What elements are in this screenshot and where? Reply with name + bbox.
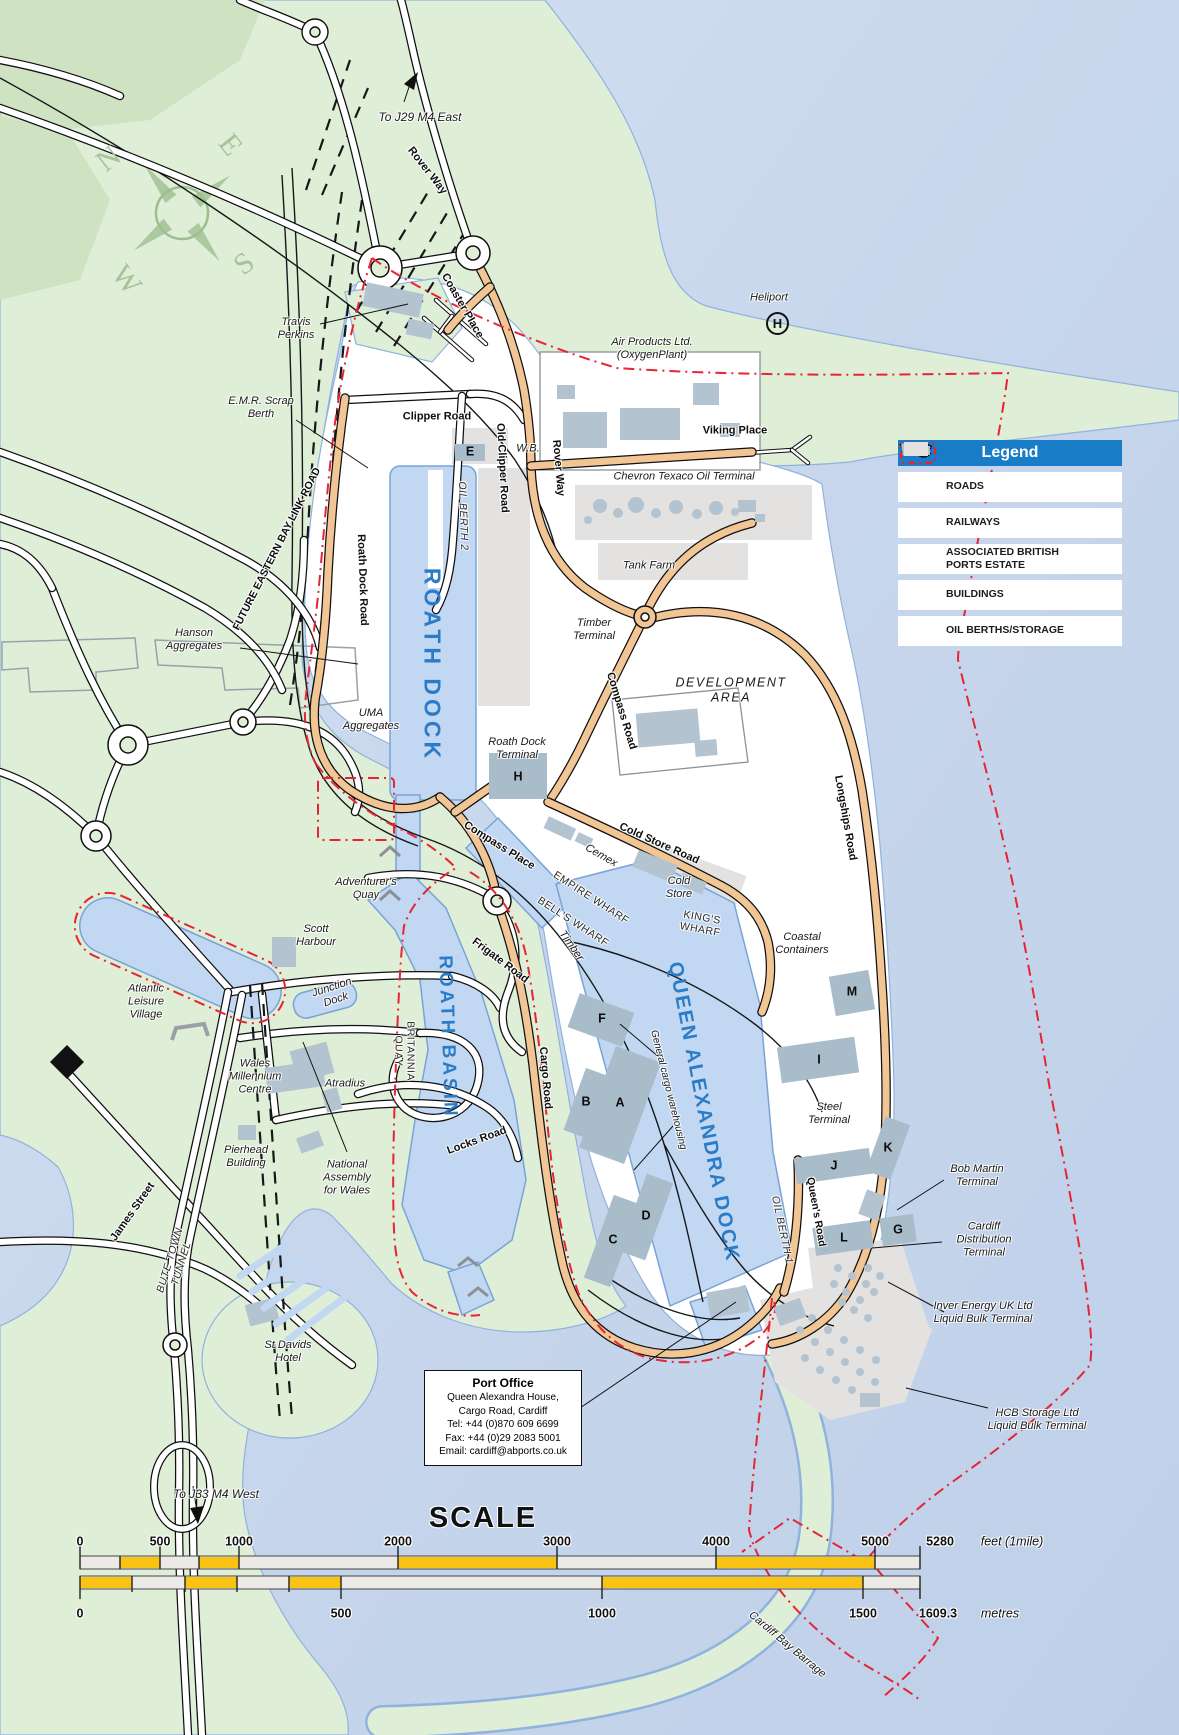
label-britannia-quay: BRITANNIA QUAY xyxy=(392,1021,417,1081)
marker-k: K xyxy=(883,1141,892,1156)
legend: Legend ROADS RAILWAYS ASSOCIATED BRITISH… xyxy=(898,440,1122,646)
marker-l: L xyxy=(840,1231,848,1246)
port-office-box: Port Office Queen Alexandra House, Cargo… xyxy=(424,1370,582,1466)
label-steel-terminal: Steel Terminal xyxy=(808,1101,850,1127)
label-inver-energy-uk-ltd-liquid-bulk-terminal: Inver Energy UK Ltd Liquid Bulk Terminal xyxy=(933,1300,1032,1326)
label-timber-terminal: Timber Terminal xyxy=(573,617,615,643)
heliport-symbol: H xyxy=(766,312,789,335)
label-roath-dock: ROATH DOCK xyxy=(418,568,445,762)
scale-title: SCALE xyxy=(429,1501,537,1535)
label-tank-farm: Tank Farm xyxy=(623,560,675,573)
legend-item-abp-estate: ASSOCIATED BRITISH PORTS ESTATE xyxy=(898,544,1122,574)
legend-item-railways: RAILWAYS xyxy=(898,508,1122,538)
label-pierhead-building: Pierhead Building xyxy=(224,1144,268,1170)
marker-i: I xyxy=(817,1053,820,1068)
label-coastal-containers: Coastal Containers xyxy=(775,931,828,957)
scale-metre-tick-1000: 1000 xyxy=(588,1607,616,1622)
marker-j: J xyxy=(831,1159,838,1174)
label-viking-place: Viking Place xyxy=(703,425,768,438)
scale-metre-tick-0: 0 xyxy=(77,1607,84,1622)
marker-a: A xyxy=(615,1096,624,1111)
label-to-j33-m4-west: To J33 M4 West xyxy=(173,1487,259,1501)
label-cold-store: Cold Store xyxy=(666,875,692,901)
label-travis-perkins: Travis Perkins xyxy=(278,316,315,342)
label-st-davids-hotel: St Davids Hotel xyxy=(264,1339,311,1365)
label-wales-millennium-centre: Wales Millennium Centre xyxy=(229,1058,282,1097)
label-roath-dock-terminal: Roath Dock Terminal xyxy=(488,736,545,762)
scale-feet-tick-4000: 4000 xyxy=(702,1535,730,1550)
map-canvas: Legend ROADS RAILWAYS ASSOCIATED BRITISH… xyxy=(0,0,1179,1735)
label-to-j29-m4-east: To J29 M4 East xyxy=(379,110,462,124)
label-hanson-aggregates: Hanson Aggregates xyxy=(166,627,222,653)
scale-metre-tick-1500: 1500 xyxy=(849,1607,877,1622)
legend-item-roads: ROADS xyxy=(898,472,1122,502)
port-office-tel: Tel: +44 (0)870 609 6699 xyxy=(427,1418,579,1432)
marker-e: E xyxy=(466,445,474,460)
marker-c: C xyxy=(608,1233,617,1248)
map-drawing xyxy=(0,0,1179,1735)
scale-feet-tick-5000: 5000 xyxy=(861,1535,889,1550)
marker-g: G xyxy=(893,1223,903,1238)
label-air-products-ltd-oxygenplant: Air Products Ltd. (OxygenPlant) xyxy=(611,336,692,362)
scale-feet-tick-3000: 3000 xyxy=(543,1535,571,1550)
marker-m: M xyxy=(847,985,857,1000)
scale-feet-tick-2000: 2000 xyxy=(384,1535,412,1550)
label-hcb-storage-ltd-liquid-bulk-terminal: HCB Storage Ltd Liquid Bulk Terminal xyxy=(988,1407,1087,1433)
scale-feet-unit: feet (1mile) xyxy=(981,1535,1044,1550)
label-bob-martin-terminal: Bob Martin Terminal xyxy=(950,1163,1003,1189)
label-cardiff-distribution-terminal: Cardiff Distribution Terminal xyxy=(956,1221,1011,1260)
label-atradius: Atradius xyxy=(325,1078,365,1091)
port-office-address-2: Cargo Road, Cardiff xyxy=(427,1405,579,1419)
label-heliport: Heliport xyxy=(750,292,788,305)
scale-feet-tick-1000: 1000 xyxy=(225,1535,253,1550)
scale-feet-tick-500: 500 xyxy=(150,1535,171,1550)
legend-item-buildings: BUILDINGS xyxy=(898,580,1122,610)
scale-feet-tick-0: 0 xyxy=(77,1535,84,1550)
marker-h: H xyxy=(513,770,522,785)
legend-item-oil-berths: OIL BERTHS/STORAGE xyxy=(898,616,1122,646)
label-w-b: W.B. xyxy=(516,443,539,456)
marker-d: D xyxy=(641,1209,650,1224)
port-office-email: Email: cardiff@abports.co.uk xyxy=(427,1445,579,1459)
label-adventurer-s-quay: Adventurer's Quay xyxy=(335,876,396,902)
label-atlantic-leisure-village: Atlantic Leisure Village xyxy=(128,983,164,1022)
label-development-area: DEVELOPMENT AREA xyxy=(676,675,787,705)
marker-f: F xyxy=(598,1012,606,1027)
scale-metre-unit: metres xyxy=(981,1607,1019,1622)
scale-metre-end: 1609.3 xyxy=(919,1607,957,1622)
label-scott-harbour: Scott Harbour xyxy=(296,923,336,949)
label-uma-aggregates: UMA Aggregates xyxy=(343,707,399,733)
label-chevron-texaco-oil-terminal: Chevron Texaco Oil Terminal xyxy=(613,471,754,484)
label-oil-berth-2: OIL BERTH 2 xyxy=(456,481,471,551)
label-national-assembly-for-wales: National Assembly for Wales xyxy=(323,1159,371,1198)
port-office-title: Port Office xyxy=(427,1376,579,1390)
label-e-m-r-scrap-berth: E.M.R. Scrap Berth xyxy=(228,395,293,421)
port-office-fax: Fax: +44 (0)29 2083 5001 xyxy=(427,1432,579,1446)
marker-b: B xyxy=(581,1095,590,1110)
port-office-address-1: Queen Alexandra House, xyxy=(427,1391,579,1405)
scale-feet-end: 5280 xyxy=(926,1535,954,1550)
label-clipper-road: Clipper Road xyxy=(403,411,471,424)
scale-metre-tick-500: 500 xyxy=(331,1607,352,1622)
